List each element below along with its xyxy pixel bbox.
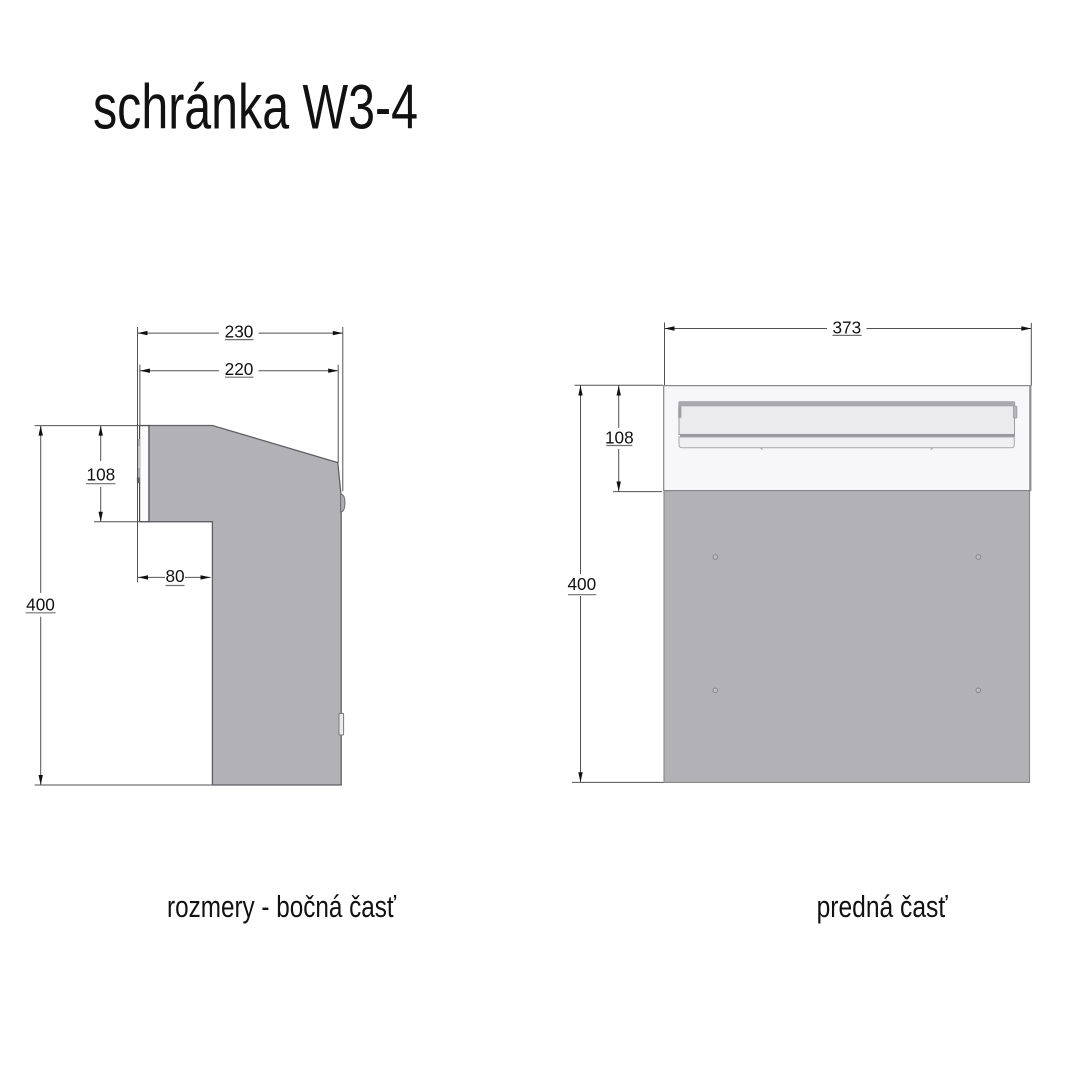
svg-text:108: 108 (87, 465, 116, 485)
svg-text:predná časť: predná časť (817, 890, 948, 924)
svg-text:230: 230 (225, 322, 254, 342)
svg-text:400: 400 (567, 574, 596, 594)
svg-text:400: 400 (26, 595, 55, 615)
svg-text:220: 220 (225, 359, 254, 379)
svg-text:373: 373 (832, 317, 861, 337)
svg-text:schránka W3-4: schránka W3-4 (93, 72, 418, 142)
svg-text:80: 80 (165, 566, 184, 586)
svg-text:rozmery - bočná časť: rozmery - bočná časť (167, 890, 396, 924)
svg-text:108: 108 (605, 427, 634, 447)
